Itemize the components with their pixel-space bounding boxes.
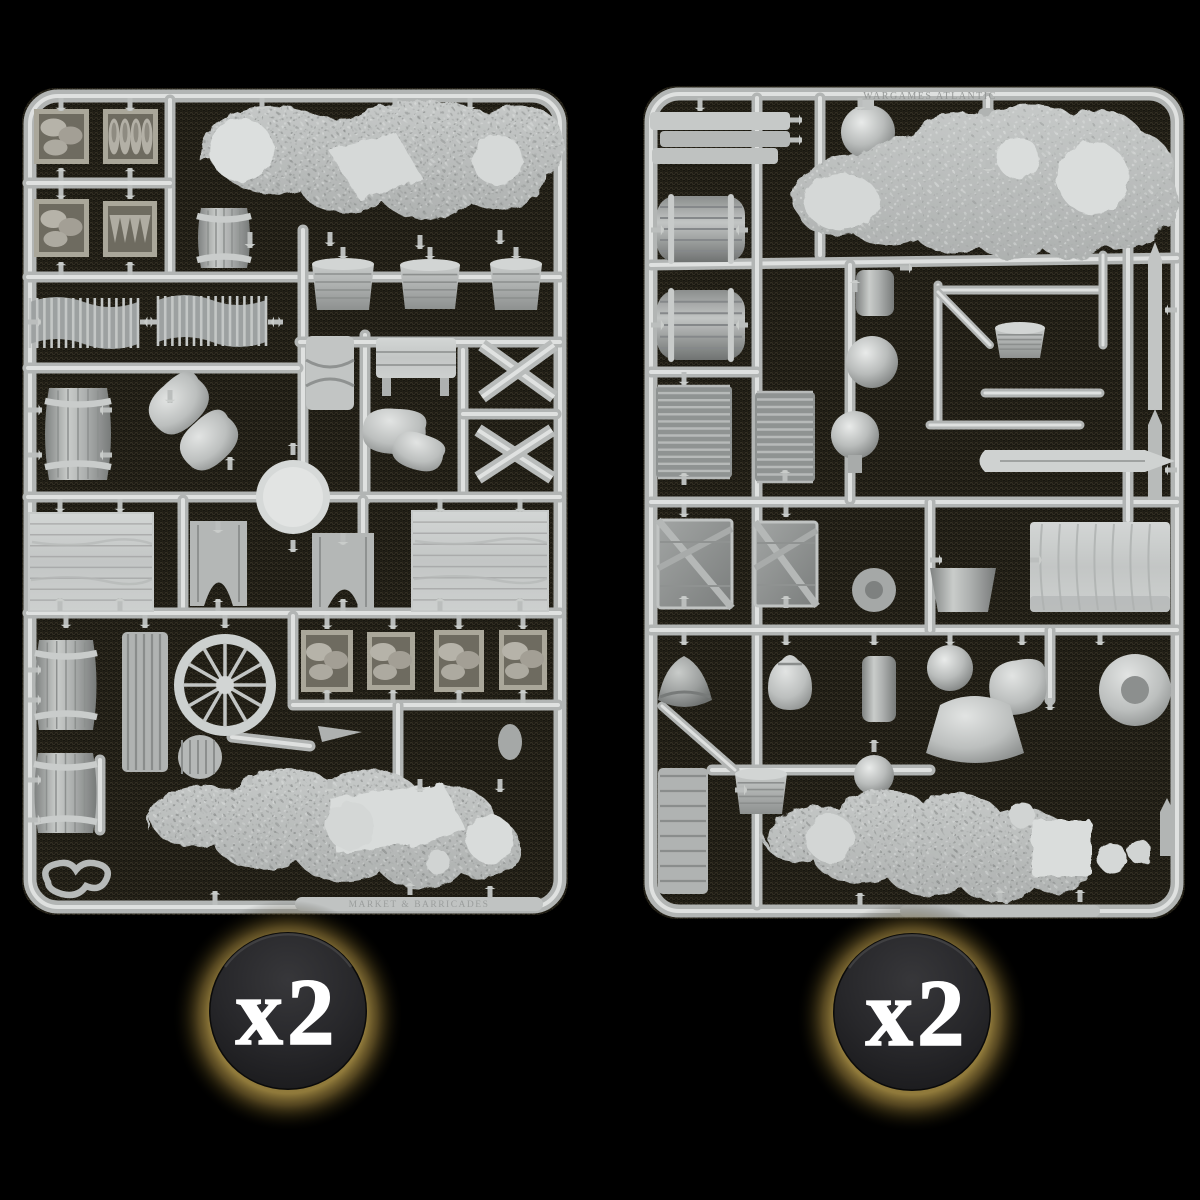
svg-text:x2: x2 — [236, 959, 339, 1065]
svg-text:WARGAMES ATLANTIC: WARGAMES ATLANTIC — [863, 91, 997, 102]
svg-text:x2: x2 — [866, 960, 969, 1066]
svg-text:MARKET & BARRICADES: MARKET & BARRICADES — [349, 900, 490, 910]
